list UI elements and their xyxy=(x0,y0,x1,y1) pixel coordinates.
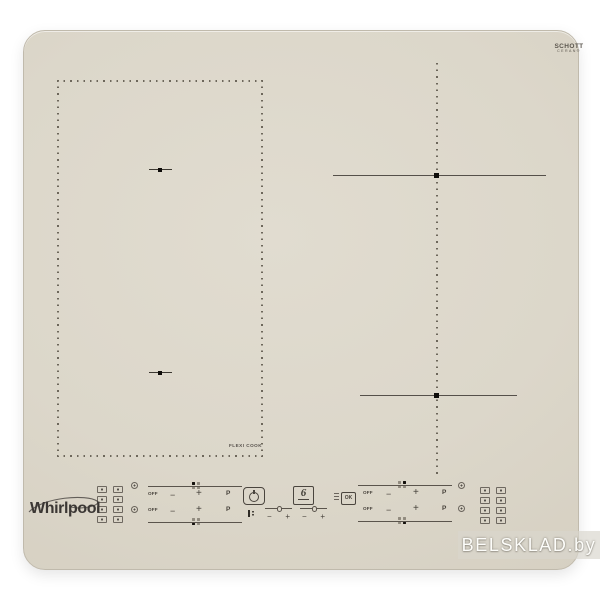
zone-bottom-right-center-dot xyxy=(434,393,439,398)
pan-marker-dot xyxy=(158,371,162,375)
right-zone-legend-icons xyxy=(480,487,504,522)
pan-zone-legend-icon xyxy=(480,507,490,514)
flexi-border-bottom xyxy=(57,455,263,457)
minus-button[interactable]: − xyxy=(386,491,391,497)
plus-button[interactable]: + xyxy=(196,506,202,513)
zone-top-right-center-dot xyxy=(434,173,439,178)
pan-zone-legend-icon xyxy=(496,517,506,524)
pan-zone-legend-icon xyxy=(480,497,490,504)
booster-button[interactable]: P xyxy=(226,506,230,513)
product-photo-whirlpool-hob: SCHOTT CERAN® FLEXI COOK O xyxy=(0,0,600,600)
sixth-sense-underline xyxy=(298,499,309,500)
off-button[interactable]: OFF xyxy=(363,506,373,511)
power-icon-bar xyxy=(253,490,254,495)
pan-zone-legend-icon xyxy=(480,487,490,494)
flexi-cook-zone-outline xyxy=(57,80,263,457)
pan-zone-legend-icon xyxy=(113,486,123,493)
timer-plus-button[interactable]: + xyxy=(285,512,290,521)
pan-zone-legend-icon xyxy=(480,517,490,524)
off-button[interactable]: OFF xyxy=(363,490,373,495)
pan-zone-legend-icon xyxy=(496,507,506,514)
flexi-border-right xyxy=(261,80,263,457)
plus-button[interactable]: + xyxy=(413,489,419,496)
timer-dot-icon xyxy=(312,506,318,512)
zone-select-dot-icon[interactable] xyxy=(458,505,465,512)
ok-button[interactable]: OK xyxy=(341,492,356,505)
slider-dot-cluster xyxy=(398,481,407,489)
pan-marker-bottom xyxy=(149,370,172,375)
pan-marker-top xyxy=(149,167,172,172)
slider-dot-cluster xyxy=(398,517,407,525)
watermark-banner: BELSKLAD.by xyxy=(458,531,600,559)
zone-select-dot-icon[interactable] xyxy=(458,482,465,489)
schott-logo-line2: CERAN® xyxy=(551,50,587,54)
slider-dot-cluster xyxy=(192,518,201,526)
off-button[interactable]: OFF xyxy=(148,491,158,496)
sixth-sense-logo: 6 xyxy=(293,486,314,505)
zone-top-right-line xyxy=(333,175,546,176)
whirlpool-logo: Whirlpool xyxy=(28,497,118,523)
pan-marker-dot xyxy=(158,168,162,172)
booster-button[interactable]: P xyxy=(226,490,230,497)
sixth-sense-number: 6 xyxy=(294,487,313,499)
power-button[interactable] xyxy=(243,487,265,505)
pan-zone-legend-icon xyxy=(97,486,107,493)
timer-minus-button[interactable]: − xyxy=(267,512,272,521)
ok-hold-microtext-icon xyxy=(334,493,339,502)
key-lock-icon[interactable] xyxy=(248,510,255,517)
flexi-border-top xyxy=(57,80,263,82)
flexi-cook-label: FLEXI COOK xyxy=(229,443,262,448)
plus-button[interactable]: + xyxy=(196,490,202,497)
minus-button[interactable]: − xyxy=(170,492,175,498)
timer-plus-button[interactable]: + xyxy=(320,512,325,521)
flexi-border-left xyxy=(57,80,59,457)
plus-button[interactable]: + xyxy=(413,505,419,512)
whirlpool-wordmark: Whirlpool xyxy=(30,500,100,518)
zone-select-dot-icon[interactable] xyxy=(131,506,138,513)
schott-ceran-logo: SCHOTT CERAN® xyxy=(551,43,587,54)
zone-select-dot-icon[interactable] xyxy=(131,482,138,489)
timer-minus-button[interactable]: − xyxy=(302,512,307,521)
pan-zone-legend-icon xyxy=(496,487,506,494)
booster-button[interactable]: P xyxy=(442,489,446,496)
minus-button[interactable]: − xyxy=(386,507,391,513)
booster-button[interactable]: P xyxy=(442,505,446,512)
pan-zone-legend-icon xyxy=(496,497,506,504)
off-button[interactable]: OFF xyxy=(148,507,158,512)
right-zones-vertical-dotted-line xyxy=(436,63,438,477)
timer-dot-icon xyxy=(277,506,283,512)
minus-button[interactable]: − xyxy=(170,508,175,514)
